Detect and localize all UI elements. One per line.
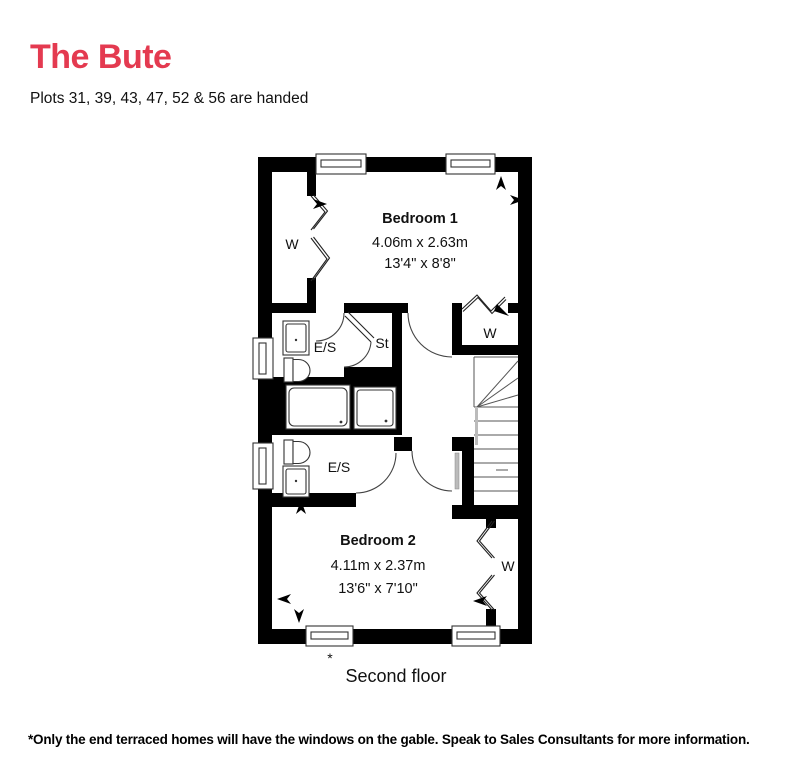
bedroom1-imperial: 13'4" x 8'8" [384,256,455,272]
bedroom2-door-leaf [455,453,459,489]
shower-icon [354,387,396,429]
bedroom2-metric: 4.11m x 2.37m [331,558,426,574]
floor-caption: Second floor [0,666,792,687]
window-top-right [446,154,495,174]
bedroom2-imperial: 13'6" x 7'10" [338,581,418,597]
floorplan-svg: Bedroom 1 4.06m x 2.63m 13'4" x 8'8" W E… [0,0,800,760]
ensuite2-label: E/S [328,459,351,475]
toilet-icon [284,358,310,382]
ensuite1-label: E/S [314,339,337,355]
page: The Bute Plots 31, 39, 43, 47, 52 & 56 a… [0,0,800,760]
toilet-icon [284,440,310,464]
bedroom1-metric: 4.06m x 2.63m [372,235,468,251]
window-bottom-left [306,626,353,646]
wardrobe3-label: W [501,558,515,574]
bedroom2-name: Bedroom 2 [340,533,416,549]
asterisk-marker: * [327,650,333,666]
wardrobe1-label: W [285,236,299,252]
ensuite2-fixtures [283,440,310,497]
stair-handrail [475,407,478,445]
sink-icon [283,466,309,497]
bath-icon [286,385,350,429]
window-bottom-right [452,626,500,646]
window-top-left [316,154,366,174]
sink-icon [283,321,309,355]
footnote: *Only the end terraced homes will have t… [28,732,772,747]
window-left-upper [253,338,273,379]
wardrobe2-label: W [483,325,497,341]
window-left-lower [253,443,273,489]
store-label: St [375,335,388,351]
bedroom1-name: Bedroom 1 [382,211,458,227]
